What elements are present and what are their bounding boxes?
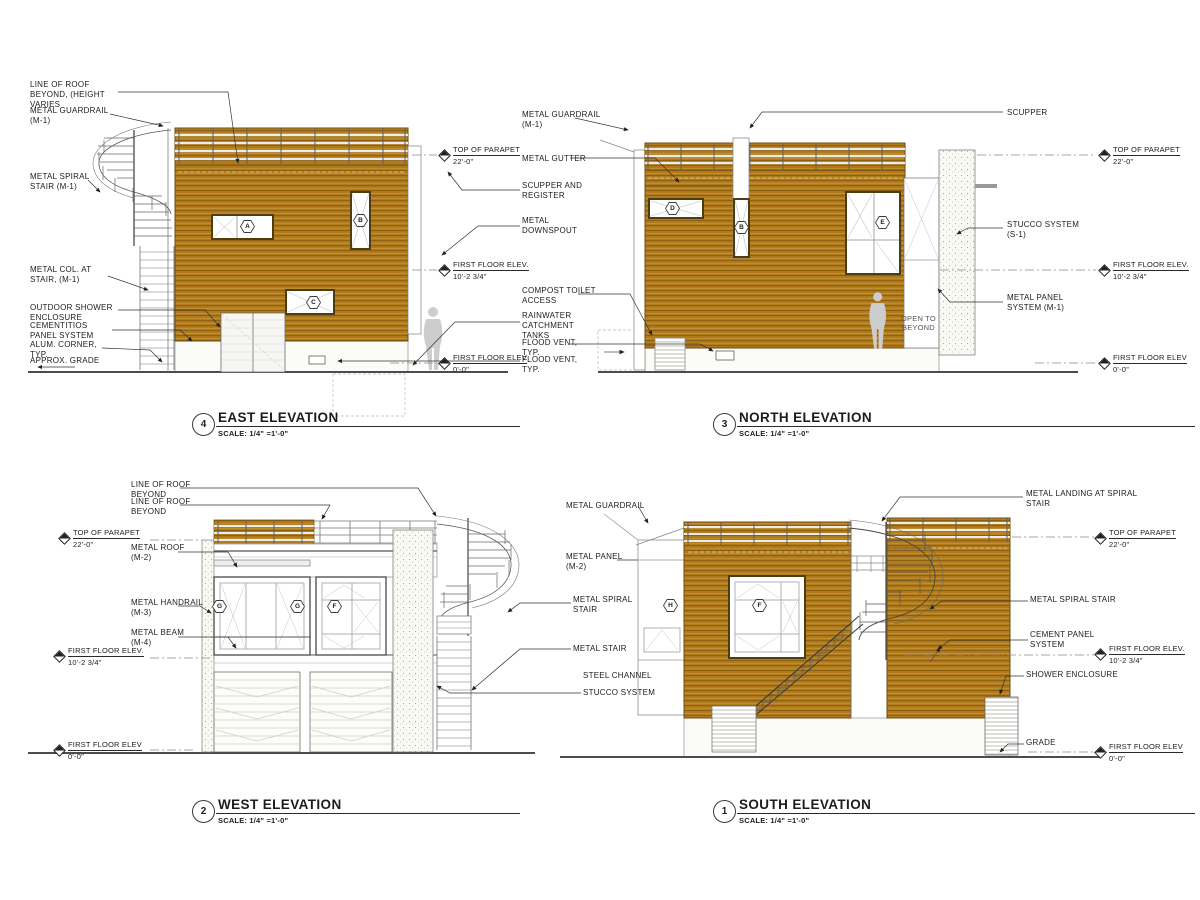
label-metal-downspout: METAL DOWNSPOUT xyxy=(522,216,577,236)
label-compost-toilet: COMPOST TOILET ACCESS xyxy=(522,286,596,306)
label-metal-landing: METAL LANDING AT SPIRAL STAIR xyxy=(1026,489,1137,509)
elevation-marker-icon xyxy=(438,264,451,277)
marker-south-parapet: TOP OF PARAPET22'-0" xyxy=(1096,528,1176,549)
label-metal-guardrail: METAL GUARDRAIL (M-1) xyxy=(30,106,108,126)
title-rule xyxy=(216,813,520,814)
detail-number-circle: 3 xyxy=(713,413,736,436)
label-flood-vent-2: FLOOD VENT, TYP. xyxy=(522,355,577,375)
marker-south-floor1: FIRST FLOOR ELEV0'-0" xyxy=(1096,742,1183,763)
scale-south: SCALE: 1/4" =1'-0" xyxy=(739,816,809,825)
label-roof-beyond-2: LINE OF ROOF BEYOND xyxy=(131,497,190,517)
elevation-marker-icon xyxy=(1098,264,1111,277)
title-rule xyxy=(737,813,1195,814)
label-metal-spiral-stair: METAL SPIRAL STAIR (M-1) xyxy=(30,172,89,192)
label-metal-beam: METAL BEAM (M-4) xyxy=(131,628,184,648)
elevation-marker-icon xyxy=(53,650,66,663)
label-shower-enclosure: SHOWER ENCLOSURE xyxy=(1026,670,1118,680)
label-cement-panel: CEMENTITIOS PANEL SYSTEM xyxy=(30,321,93,341)
elevation-marker-icon xyxy=(438,149,451,162)
label-scupper: SCUPPER xyxy=(1007,108,1047,118)
note-open-to-beyond: OPEN TO BEYOND xyxy=(901,314,936,332)
title-rule xyxy=(216,426,520,427)
label-approx-grade: APPROX. GRADE xyxy=(30,356,100,366)
label-outdoor-shower: OUTDOOR SHOWER ENCLOSURE xyxy=(30,303,113,323)
title-rule xyxy=(737,426,1195,427)
elevation-marker-icon xyxy=(58,532,71,545)
elevation-marker-icon xyxy=(1094,648,1107,661)
marker-north-floor2: FIRST FLOOR ELEV.10'-2 3/4" xyxy=(1100,260,1189,281)
label-cement-panel-s: CEMENT PANEL SYSTEM xyxy=(1030,630,1095,650)
label-metal-stair: METAL STAIR xyxy=(573,644,627,654)
scale-west: SCALE: 1/4" =1'-0" xyxy=(218,816,288,825)
label-metal-guardrail-w: METAL GUARDRAIL xyxy=(566,501,644,511)
marker-north-floor1: FIRST FLOOR ELEV0'-0" xyxy=(1100,353,1187,374)
elevation-marker-icon xyxy=(53,744,66,757)
marker-west-floor1: FIRST FLOOR ELEV0'-0" xyxy=(55,740,142,761)
title-south-elevation: SOUTH ELEVATION xyxy=(739,797,871,814)
marker-west-parapet: TOP OF PARAPET22'-0" xyxy=(60,528,140,549)
label-scupper-register: SCUPPER AND REGISTER xyxy=(522,181,582,201)
elevation-linework xyxy=(0,0,1200,900)
detail-number-circle: 2 xyxy=(192,800,215,823)
label-spiral-stair-s: METAL SPIRAL STAIR xyxy=(1030,595,1116,605)
label-spiral-stair-w: METAL SPIRAL STAIR xyxy=(573,595,632,615)
label-stucco-system: STUCCO SYSTEM (S-1) xyxy=(1007,220,1079,240)
elevation-marker-icon xyxy=(1094,532,1107,545)
marker-east-floor1: FIRST FLOOR ELEV0'-0" xyxy=(440,353,527,374)
elevation-sheet: LINE OF ROOF BEYOND, (HEIGHT VARIES META… xyxy=(0,0,1200,900)
label-stucco-system-w: STUCCO SYSTEM xyxy=(583,688,655,698)
elevation-marker-icon xyxy=(1098,149,1111,162)
scale-north: SCALE: 1/4" =1'-0" xyxy=(739,429,809,438)
label-metal-panel-system: METAL PANEL SYSTEM (M-1) xyxy=(1007,293,1064,313)
label-metal-gutter: METAL GUTTER xyxy=(522,154,586,164)
title-west-elevation: WEST ELEVATION xyxy=(218,797,342,814)
marker-west-floor2: FIRST FLOOR ELEV.10'-2 3/4" xyxy=(55,646,144,667)
marker-east-floor2: FIRST FLOOR ELEV.10'-2 3/4" xyxy=(440,260,529,281)
elevation-marker-icon xyxy=(1098,357,1111,370)
title-north-elevation: NORTH ELEVATION xyxy=(739,410,872,427)
marker-south-floor2: FIRST FLOOR ELEV.10'-2 3/4" xyxy=(1096,644,1185,665)
marker-north-parapet: TOP OF PARAPET22'-0" xyxy=(1100,145,1180,166)
elevation-marker-icon xyxy=(438,357,451,370)
label-steel-channel: STEEL CHANNEL xyxy=(583,671,652,681)
title-east-elevation: EAST ELEVATION xyxy=(218,410,339,427)
label-metal-guardrail-n: METAL GUARDRAIL (M-1) xyxy=(522,110,600,130)
label-line-of-roof: LINE OF ROOF BEYOND, (HEIGHT VARIES xyxy=(30,80,105,109)
scale-east: SCALE: 1/4" =1'-0" xyxy=(218,429,288,438)
detail-number-circle: 4 xyxy=(192,413,215,436)
label-rainwater-tanks: RAINWATER CATCHMENT TANKS xyxy=(522,311,574,340)
detail-number-circle: 1 xyxy=(713,800,736,823)
marker-east-parapet: TOP OF PARAPET22'-0" xyxy=(440,145,520,166)
label-metal-panel-m2: METAL PANEL (M-2) xyxy=(566,552,622,572)
label-grade: GRADE xyxy=(1026,738,1056,748)
elevation-marker-icon xyxy=(1094,746,1107,759)
label-metal-handrail: METAL HANDRAIL (M-3) xyxy=(131,598,203,618)
label-metal-col: METAL COL. AT STAIR, (M-1) xyxy=(30,265,91,285)
